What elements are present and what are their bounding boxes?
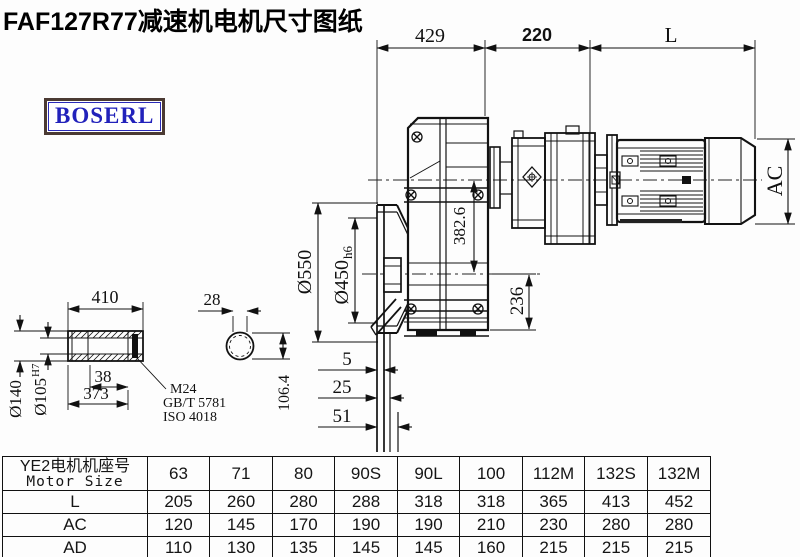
row-label: AC [3, 514, 148, 537]
column-header: 112M [523, 457, 585, 491]
table-cell: 145 [335, 537, 398, 557]
column-header: 90L [398, 457, 460, 491]
drawing-page: FAF127R77减速机电机尺寸图纸 BOSERL 429 220 L [0, 0, 800, 557]
table-cell: 280 [273, 491, 335, 514]
column-header: 132S [585, 457, 648, 491]
dim-450-label: Ø450 [331, 260, 353, 304]
table-cell: 413 [585, 491, 648, 514]
column-header: 71 [210, 457, 273, 491]
shaft-106-label: 106.4 [276, 375, 293, 411]
table-cell: 230 [523, 514, 585, 537]
dim-236-label-group: 236 [507, 287, 528, 316]
dim-450-tolerance: h6 [340, 246, 355, 260]
dim-550-label-group: Ø550 [294, 250, 316, 294]
column-header: 80 [273, 457, 335, 491]
table-cell: 205 [148, 491, 210, 514]
table-cell: 135 [273, 537, 335, 557]
table-row: L 205 260 280 288 318 318 365 413 452 [3, 491, 711, 514]
shaft-105-tolerance: H7 [30, 363, 42, 377]
shaft-410-label: 410 [92, 287, 119, 307]
table-header-row: YE2电机机座号 Motor Size 63 71 80 90S 90L 100… [3, 457, 711, 491]
motor-fins [640, 151, 703, 211]
table-cell: 190 [398, 514, 460, 537]
table-row: AC 120 145 170 190 190 210 230 280 280 [3, 514, 711, 537]
header-cn: YE2电机机座号 [3, 458, 147, 475]
column-header: 100 [460, 457, 523, 491]
dim-AC-label: AC [762, 166, 787, 197]
shaft-105-label-group: Ø105 H7 [30, 363, 50, 416]
dim-AC-label-group: AC [762, 166, 787, 197]
table-cell: 145 [210, 514, 273, 537]
shaft-140-label-group: Ø140 [6, 380, 25, 418]
table-cell: 110 [148, 537, 210, 557]
shaft-detail [14, 302, 290, 410]
shaft-373-label: 373 [83, 384, 109, 403]
column-header: 63 [148, 457, 210, 491]
dim-450-label-group: Ø450 h6 [331, 246, 355, 305]
dim-550-label: Ø550 [294, 250, 316, 294]
dim-382-label: 382.6 [450, 207, 469, 245]
center-lines [362, 180, 762, 274]
shaft-28-label: 28 [204, 290, 221, 309]
table-cell: 160 [460, 537, 523, 557]
dim-236-label: 236 [507, 287, 528, 316]
dim-429-label: 429 [415, 25, 445, 47]
table-cell: 215 [585, 537, 648, 557]
table-cell: 210 [460, 514, 523, 537]
table-row: AD 110 130 135 145 145 160 215 215 215 [3, 537, 711, 557]
table-cell: 280 [585, 514, 648, 537]
table-cell: 288 [335, 491, 398, 514]
table-cell: 215 [523, 537, 585, 557]
table-cell: 190 [335, 514, 398, 537]
shaft-106-label-group: 106.4 [276, 375, 293, 411]
dim-L-label: L [665, 23, 678, 47]
table-cell: 260 [210, 491, 273, 514]
table-cell: 170 [273, 514, 335, 537]
adapter-housing [490, 126, 607, 244]
table-cell: 318 [398, 491, 460, 514]
table-cell: 120 [148, 514, 210, 537]
top-dimensions [377, 40, 755, 244]
dim-220-label: 220 [522, 25, 552, 45]
shaft-105-label: Ø105 [31, 378, 50, 416]
table-cell: 452 [648, 491, 711, 514]
output-flange [371, 205, 408, 452]
dim-5-label: 5 [342, 349, 352, 370]
row-label: L [3, 491, 148, 514]
shaft-140-label: Ø140 [6, 380, 25, 418]
motor-size-table: YE2电机机座号 Motor Size 63 71 80 90S 90L 100… [2, 456, 711, 557]
dimension-drawing: 429 220 L [0, 0, 800, 455]
table-cell: 280 [648, 514, 711, 537]
shaft-std-gb-label: GB/T 5781 [163, 396, 226, 411]
shaft-thread-label: M24 [170, 382, 196, 397]
gearbox-body [404, 118, 489, 336]
dim-25-label: 25 [333, 377, 352, 398]
table-cell: 365 [523, 491, 585, 514]
header-en: Motor Size [3, 475, 147, 490]
shaft-std-iso-label: ISO 4018 [163, 410, 217, 425]
gearbox-bolts [406, 132, 483, 314]
table-cell: 130 [210, 537, 273, 557]
dim-382-label-group: 382.6 [450, 207, 469, 245]
table-cell: 215 [648, 537, 711, 557]
row-label: AD [3, 537, 148, 557]
table-header-motor-size: YE2电机机座号 Motor Size [3, 457, 148, 491]
dim-51-label: 51 [333, 406, 352, 427]
column-header: 90S [335, 457, 398, 491]
table-cell: 145 [398, 537, 460, 557]
column-header: 132M [648, 457, 711, 491]
table-cell: 318 [460, 491, 523, 514]
